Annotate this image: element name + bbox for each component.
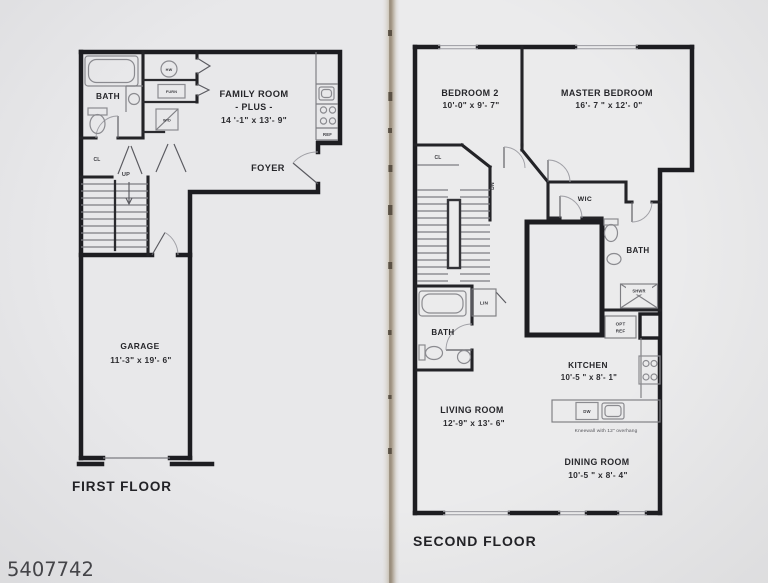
label-kitchen: KITCHEN [568,360,608,370]
label-foyer: FOYER [251,163,285,173]
label-master-bedroom: MASTER BEDROOM [561,88,653,98]
label-living-room: LIVING ROOM [440,405,504,415]
label-family-room-plus: - PLUS - [235,102,272,112]
label-garage-dims: 11'-3" x 19'- 6" [110,355,171,365]
label-wd: W/D [163,119,171,123]
title-second-floor: SECOND FLOOR [413,533,537,549]
label-furn: FURN [166,90,177,94]
label-ff-ref: REF [323,132,332,137]
label-dw: DW [583,409,591,414]
label-dining-room-dims: 10'-5 " x 8'- 4" [568,470,628,480]
label-bath-right: BATH [626,246,649,255]
floor-plan-booklet-photo: BATH FAMILY ROOM - PLUS - 14 '-1" x 13'-… [0,0,768,583]
label-dining-room: DINING ROOM [565,457,630,467]
stair-rail [448,200,460,268]
label-up: UP [122,172,130,178]
chase-box [640,314,660,338]
label-hw: HW [166,68,173,72]
label-family-room-dims: 14 '-1" x 13'- 9" [221,115,287,125]
label-shwr: SHWR [632,289,645,294]
title-first-floor: FIRST FLOOR [72,479,172,494]
label-lin: LIN [480,301,489,307]
spine-crease [389,0,391,583]
label-sf-cl: CL [434,155,441,161]
label-kitchen-dims: 10'-5 " x 8'- 1" [561,373,617,382]
label-bedroom2-dims: 10'-0" x 9'- 7" [443,100,500,110]
label-ff-cl: CL [93,157,100,163]
label-ff-bath: BATH [96,91,120,101]
label-family-room: FAMILY ROOM [220,89,289,99]
label-opt: OPT [616,322,626,327]
label-living-room-dims: 12'-9" x 13'- 6" [443,418,505,428]
booklet-svg: BATH FAMILY ROOM - PLUS - 14 '-1" x 13'-… [0,0,768,583]
label-bath-left: BATH [431,328,454,337]
label-kneewall-note: Kneewall with 12" overhang [575,428,638,434]
center-shaft [527,222,602,335]
label-dn: DN [490,182,496,190]
label-master-bedroom-dims: 16'- 7 " x 12'- 0" [575,100,642,110]
label-wic: WIC [578,196,592,203]
watermark-photo-id: 5407742 [7,558,94,581]
label-opt-ref: REF [616,329,626,334]
label-bedroom2: BEDROOM 2 [441,88,498,98]
label-garage: GARAGE [120,341,159,351]
